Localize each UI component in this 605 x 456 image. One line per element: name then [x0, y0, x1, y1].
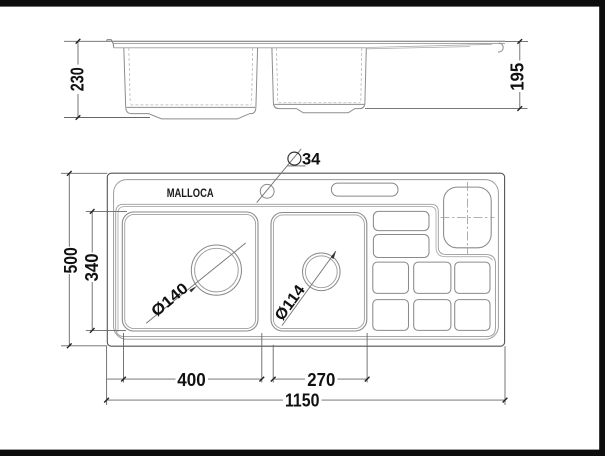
svg-text:MALLOCA: MALLOCA [167, 186, 214, 200]
svg-text:500: 500 [61, 247, 81, 273]
svg-text:1150: 1150 [285, 391, 320, 411]
svg-text:270: 270 [307, 370, 335, 390]
svg-text:34: 34 [302, 151, 321, 169]
svg-text:230: 230 [68, 67, 88, 91]
svg-text:340: 340 [82, 253, 102, 281]
svg-text:400: 400 [177, 370, 205, 390]
svg-text:195: 195 [507, 63, 527, 91]
